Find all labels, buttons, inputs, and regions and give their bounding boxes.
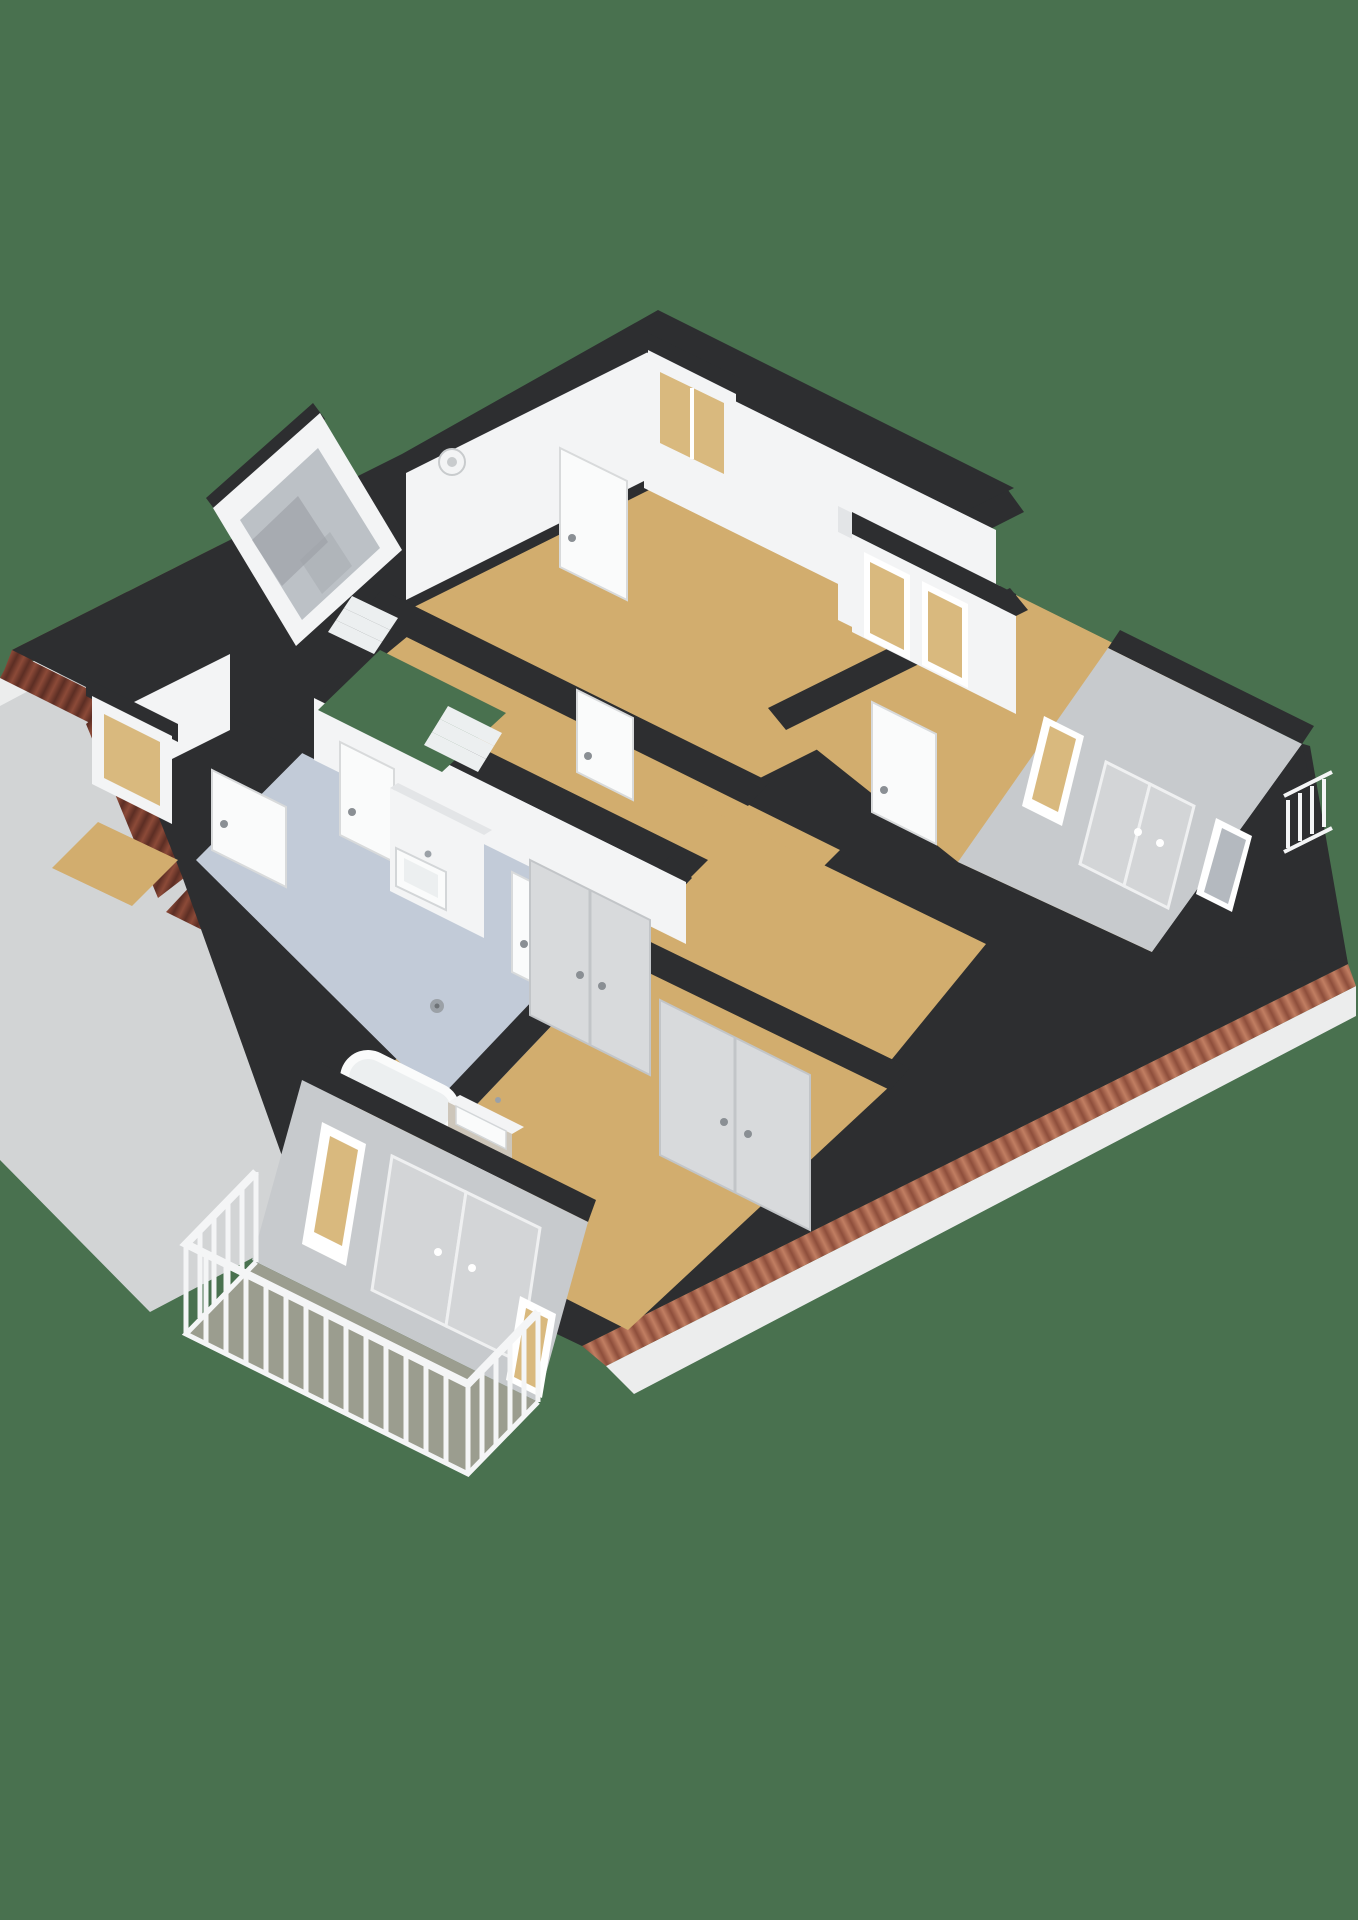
door-handle [220,820,228,828]
closet-handle [576,971,584,979]
closet-handle [744,1130,752,1138]
faucet-icon [495,1097,501,1103]
door-handle [1134,828,1142,836]
stair-handrail-volute-center [447,457,457,467]
door-handle [568,534,576,542]
closet-handle [598,982,606,990]
faucet-icon [425,851,432,858]
door-handle [584,752,592,760]
door-handle [468,1264,476,1272]
door-handle [348,808,356,816]
door-handle [880,786,888,794]
shower-drain-hole [435,1004,440,1009]
closet-handle [720,1118,728,1126]
door-handle [434,1248,442,1256]
door-handle [1156,839,1164,847]
screenshot-canvas [0,0,1358,1920]
floorplan-3d-render [0,0,1358,1920]
door-handle [520,940,528,948]
